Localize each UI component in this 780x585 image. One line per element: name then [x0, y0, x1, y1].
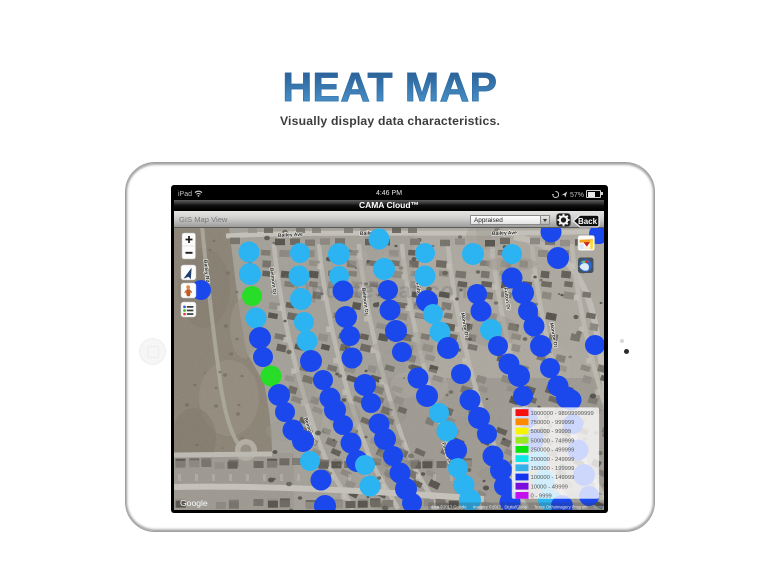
svg-text:Texas Orthoimagery Program: Texas Orthoimagery Program [534, 504, 588, 509]
svg-text:Back: Back [578, 217, 598, 226]
svg-text:500000 - 749999: 500000 - 749999 [531, 438, 575, 444]
svg-text:Bailey Ave: Bailey Ave [492, 230, 517, 237]
svg-text:Terms: Terms [593, 504, 604, 509]
svg-text:150000 - 199999: 150000 - 199999 [531, 466, 575, 472]
svg-text:250000 - 499999: 250000 - 499999 [531, 447, 575, 453]
svg-text:Google: Google [180, 498, 208, 508]
svg-text:500000 - 99999: 500000 - 99999 [531, 429, 572, 435]
svg-text:10000 - 49999: 10000 - 49999 [531, 484, 568, 490]
svg-text:0 - 9999: 0 - 9999 [531, 493, 552, 499]
svg-text:data ©2017 Google: data ©2017 Google [431, 504, 467, 509]
svg-text:1000000 - 98999999999: 1000000 - 98999999999 [531, 410, 594, 416]
svg-text:750000 - 999999: 750000 - 999999 [531, 420, 575, 426]
svg-text:100000 - 149999: 100000 - 149999 [531, 475, 575, 481]
svg-text:200000 - 249999: 200000 - 249999 [531, 456, 575, 462]
svg-text:Imagery ©2017 , DigitalGlobe: Imagery ©2017 , DigitalGlobe [473, 504, 527, 509]
